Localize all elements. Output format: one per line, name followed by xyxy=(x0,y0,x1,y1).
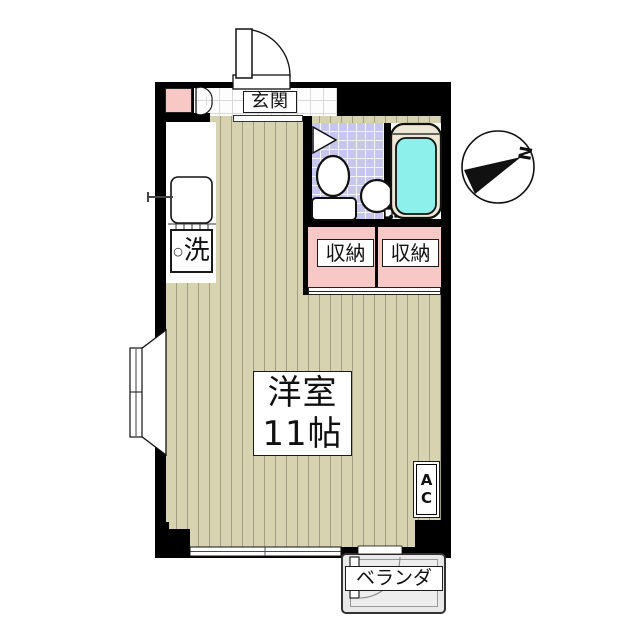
veranda-label: ベランダ xyxy=(345,566,443,591)
room-size: 11帖 xyxy=(262,414,342,454)
wall-stub xyxy=(155,113,210,122)
bathroom-wall-bottom xyxy=(303,219,451,227)
washer-circle-glyph: ○ xyxy=(173,246,183,257)
ac-letter-c: C xyxy=(421,491,432,506)
entrance-step xyxy=(233,115,303,122)
compass-north-label: N xyxy=(513,144,535,161)
bath-area xyxy=(391,123,441,219)
room-name: 洋室 xyxy=(268,373,338,413)
washer-kanji: 洗 xyxy=(184,238,210,264)
wall-corner-bottom-right-block xyxy=(415,520,451,550)
storage-closet-doors xyxy=(308,287,441,295)
floor-plan: N 玄関 ○ 洗 収納 収納 洋室 11帖 A C ベランダ xyxy=(0,0,640,640)
ac-label-inner: A C xyxy=(416,464,437,515)
ac-letter-a: A xyxy=(421,473,433,488)
room-label: 洋室 11帖 xyxy=(253,371,352,456)
washer-label: ○ 洗 xyxy=(170,229,213,273)
wall-corner-bottom-left-block xyxy=(155,529,190,554)
entrance-label: 玄関 xyxy=(243,91,297,113)
bathroom-wall-left xyxy=(303,116,312,227)
ac-label: A C xyxy=(413,461,440,518)
bathroom-tile-floor xyxy=(312,123,384,219)
compass-icon: N xyxy=(462,131,535,203)
storage-label-2: 収納 xyxy=(382,239,439,267)
entrance-door-icon xyxy=(233,29,290,89)
entrance-shoe-cabinet xyxy=(165,88,192,113)
bathroom-wall-divider xyxy=(384,123,391,219)
storage-label-1: 収納 xyxy=(317,239,374,267)
storage-closet-divider xyxy=(375,227,378,287)
